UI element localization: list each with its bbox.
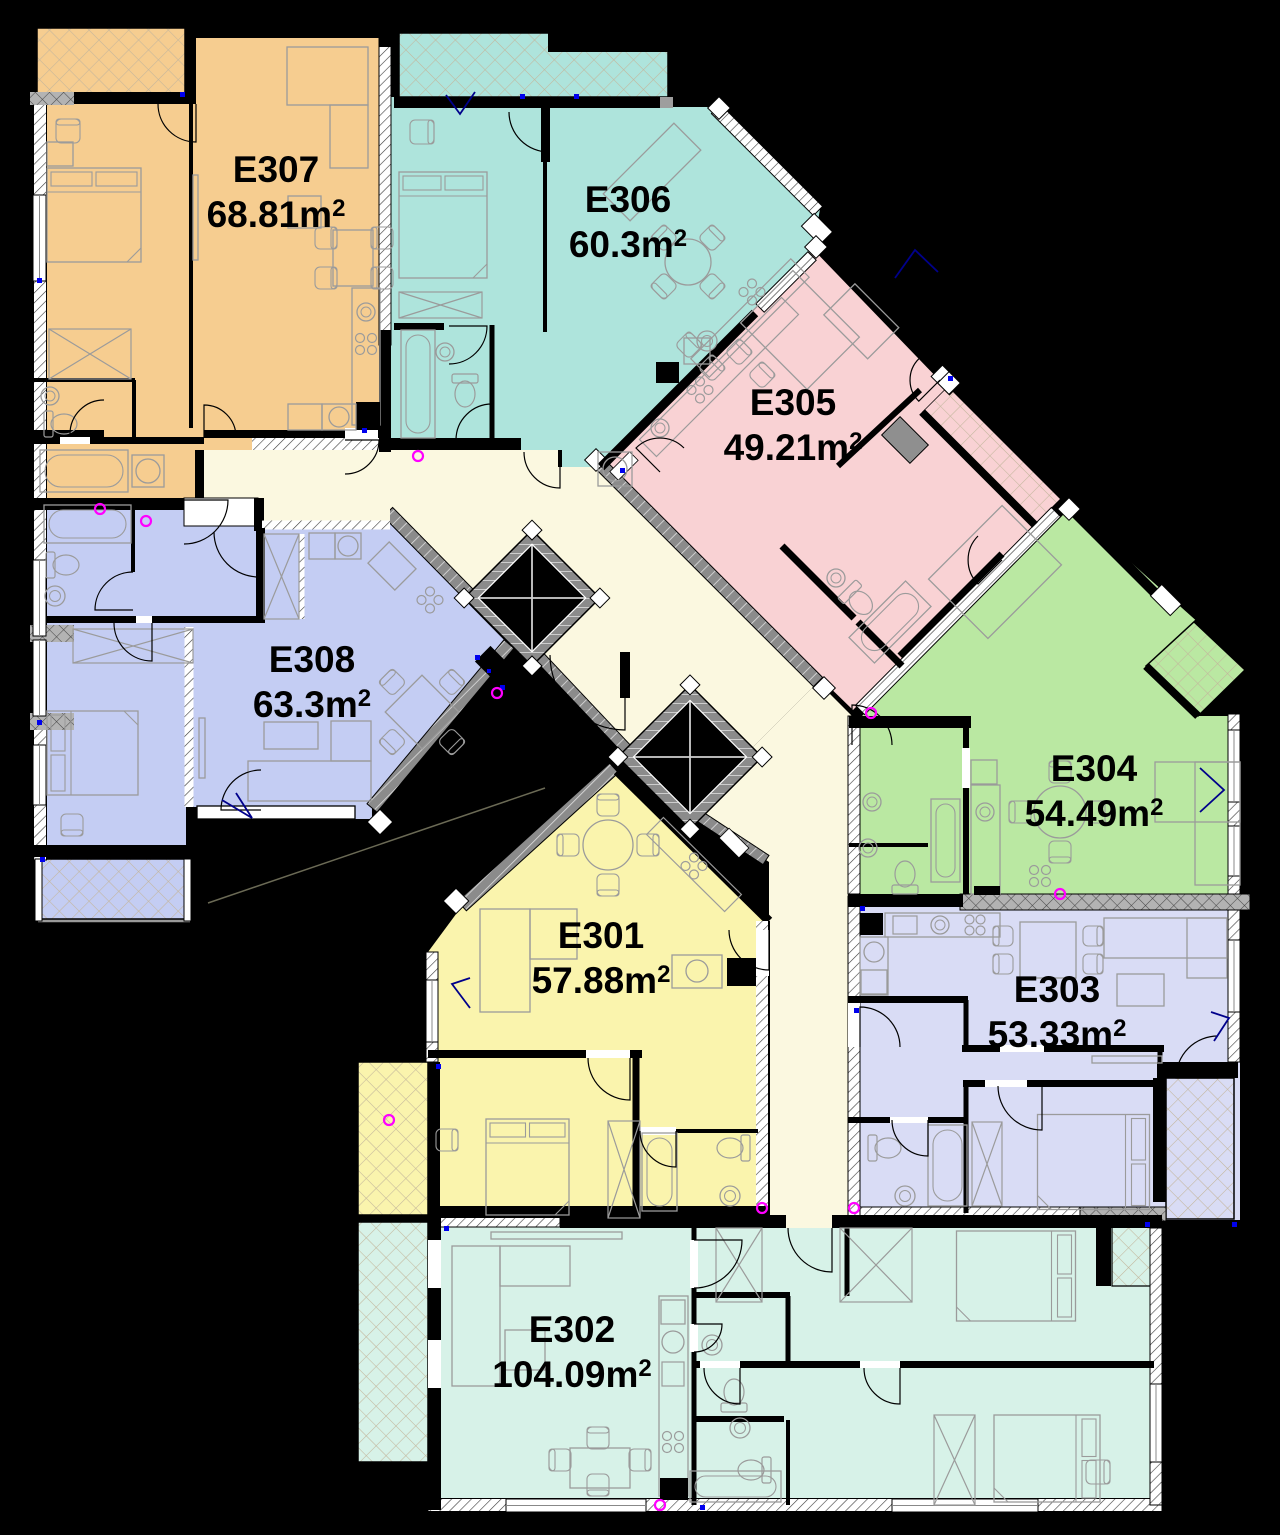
svg-text:53.33m2: 53.33m2 <box>988 1014 1127 1055</box>
svg-text:104.09m2: 104.09m2 <box>492 1354 651 1395</box>
svg-text:54.49m2: 54.49m2 <box>1025 793 1164 834</box>
svg-text:60.3m2: 60.3m2 <box>569 224 687 265</box>
svg-text:57.88m2: 57.88m2 <box>532 960 671 1001</box>
svg-text:E306: E306 <box>585 179 671 220</box>
svg-text:49.21m2: 49.21m2 <box>724 427 863 468</box>
svg-text:E302: E302 <box>529 1309 615 1350</box>
svg-text:E301: E301 <box>558 915 644 956</box>
svg-text:E304: E304 <box>1051 748 1138 789</box>
svg-text:68.81m2: 68.81m2 <box>207 194 346 235</box>
svg-text:E305: E305 <box>750 382 836 423</box>
svg-text:E307: E307 <box>233 149 319 190</box>
svg-text:63.3m2: 63.3m2 <box>253 684 371 725</box>
svg-text:E303: E303 <box>1014 969 1100 1010</box>
svg-text:E308: E308 <box>269 639 355 680</box>
